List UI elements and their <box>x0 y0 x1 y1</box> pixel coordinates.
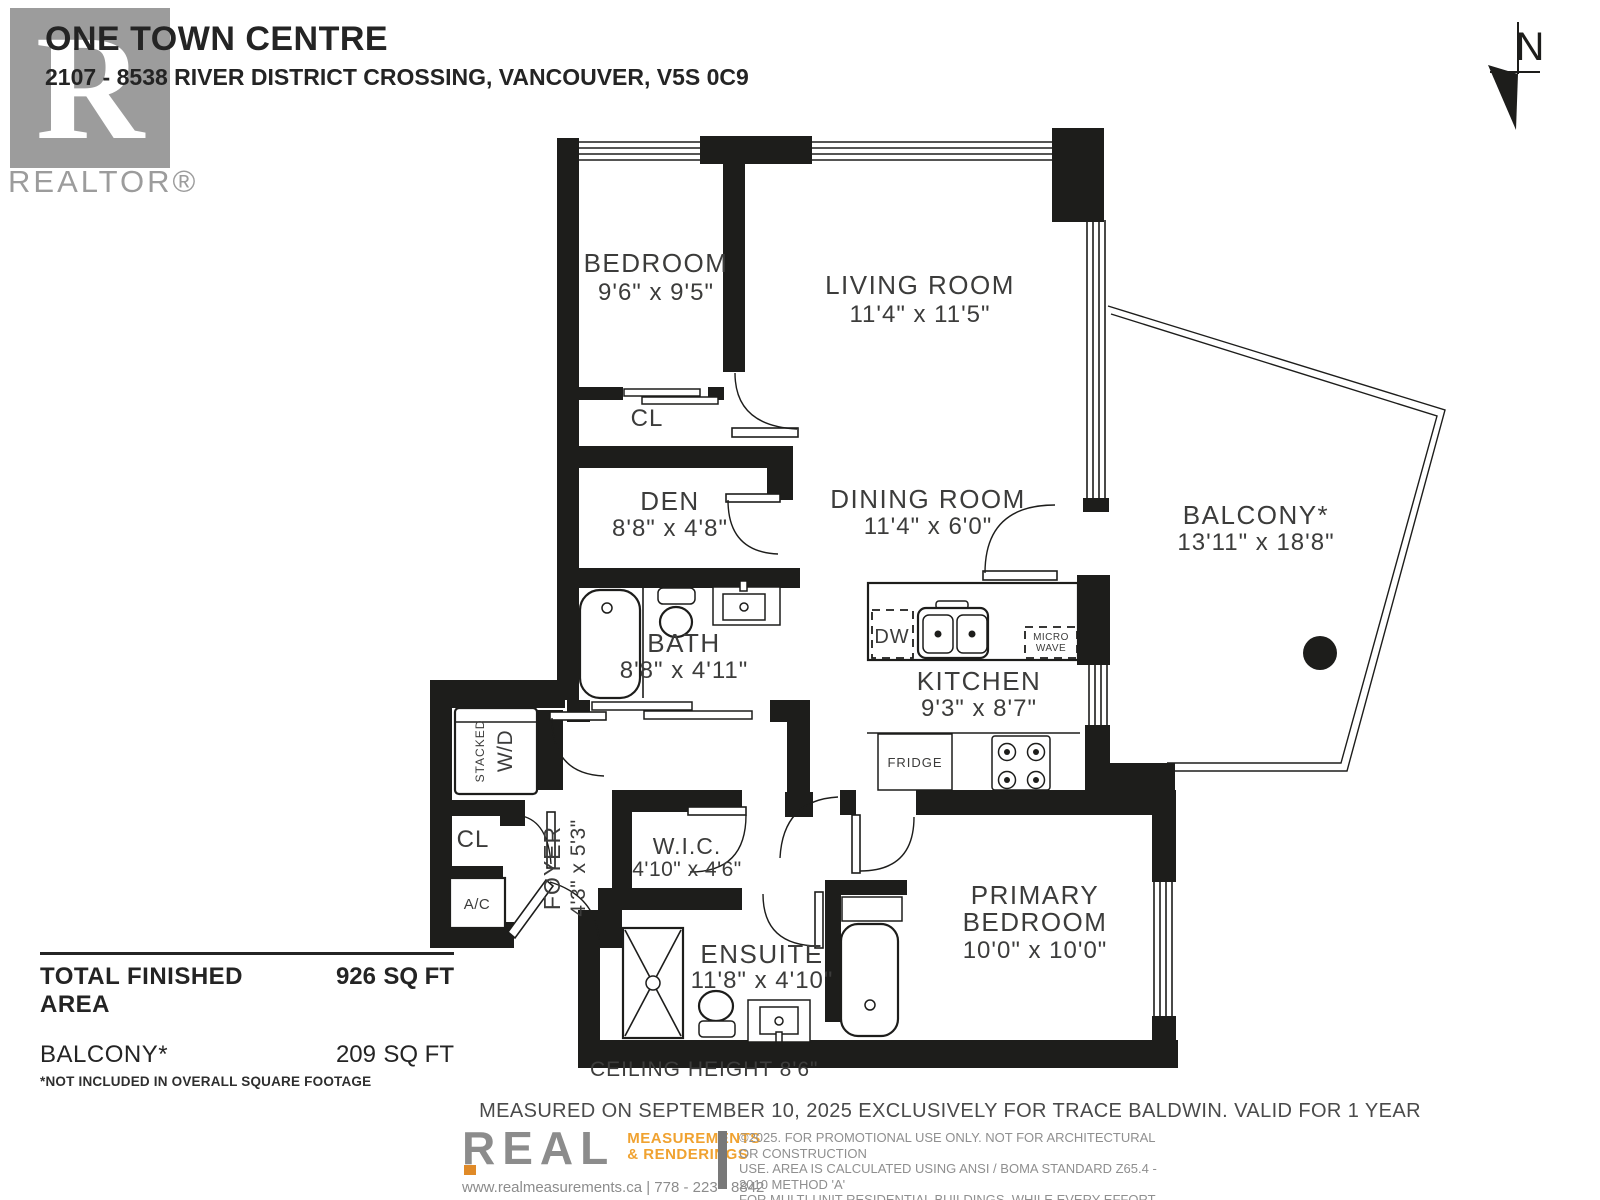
label-ensuite: ENSUITE <box>700 939 823 969</box>
ac-label: A/C <box>464 896 491 913</box>
area-table-divider <box>40 952 454 955</box>
floorplan-drawing: DW MICRO WAVE FRIDGE <box>400 110 1480 1070</box>
disclaimer: ©2025. FOR PROMOTIONAL USE ONLY. NOT FOR… <box>739 1129 1169 1200</box>
label-ensuite-dims: 11'8" x 4'10" <box>691 967 834 994</box>
label-wic: W.I.C. <box>653 833 722 859</box>
label-dining-dims: 11'4" x 6'0" <box>864 513 993 540</box>
balcony-area-unit: SQ FT <box>376 1041 454 1069</box>
wd-label: W/D <box>494 730 517 772</box>
label-primary-2: BEDROOM <box>963 907 1108 937</box>
realtor-logo-text: REALTOR® <box>8 164 198 200</box>
microwave-label-2: WAVE <box>1036 643 1066 654</box>
disclaimer-line: USE. AREA IS CALCULATED USING ANSI / BOM… <box>739 1161 1169 1192</box>
disclaimer-line: FOR MULTI-UNIT RESIDENTIAL BUILDINGS. WH… <box>739 1192 1169 1200</box>
fridge-label: FRIDGE <box>887 755 942 770</box>
north-label: N <box>1516 25 1545 69</box>
microwave-label-1: MICRO <box>1033 632 1069 643</box>
balcony-area-row: BALCONY* 209 SQ FT <box>40 1041 454 1069</box>
window-kitchen-east <box>1089 663 1107 728</box>
balcony-area-label: BALCONY* <box>40 1041 314 1069</box>
label-foyer-dims: 4'3" x 5'3" <box>567 819 590 916</box>
ceiling-height-note: CEILING HEIGHT 8'6" <box>590 1058 818 1082</box>
label-closet-foyer: CL <box>457 826 490 853</box>
label-primary-dims: 10'0" x 10'0" <box>963 937 1108 964</box>
label-foyer: FOYER <box>539 826 565 910</box>
label-dining: DINING ROOM <box>830 484 1026 514</box>
balcony-area-value: 209 <box>314 1041 376 1069</box>
north-arrow-icon: N <box>1468 12 1558 137</box>
brand-contact: www.realmeasurements.ca | 778 - 223 - 88… <box>462 1179 704 1196</box>
tub-shelf <box>842 897 902 921</box>
page-address: 2107 - 8538 RIVER DISTRICT CROSSING, VAN… <box>45 64 749 91</box>
label-living-dims: 11'4" x 11'5" <box>849 301 990 328</box>
label-bath-dims: 8'8" x 4'11" <box>620 657 749 684</box>
window-living-east <box>1087 220 1105 500</box>
label-kitchen: KITCHEN <box>917 666 1042 696</box>
measured-note: MEASURED ON SEPTEMBER 10, 2025 EXCLUSIVE… <box>430 1100 1470 1123</box>
label-closet-bedroom: CL <box>631 405 664 432</box>
page-title: ONE TOWN CENTRE <box>45 20 388 59</box>
label-kitchen-dims: 9'3" x 8'7" <box>921 695 1037 722</box>
wd-label-stacked: STACKED <box>473 720 487 783</box>
total-area-label: TOTAL FINISHED AREA <box>40 963 314 1019</box>
total-area-unit: SQ FT <box>376 963 454 991</box>
disclaimer-line: ©2025. FOR PROMOTIONAL USE ONLY. NOT FOR… <box>739 1130 1169 1161</box>
total-area-row: TOTAL FINISHED AREA 926 SQ FT <box>40 963 454 1019</box>
label-primary-1: PRIMARY <box>971 880 1100 910</box>
footer-divider <box>718 1131 727 1189</box>
label-balcony: BALCONY* <box>1183 500 1329 530</box>
toilet-tank <box>658 588 695 604</box>
area-footnote: *NOT INCLUDED IN OVERALL SQUARE FOOTAGE <box>40 1074 454 1089</box>
label-wic-dims: 4'10" x 4'6" <box>632 858 742 881</box>
brand-logo: REAL <box>462 1129 615 1167</box>
dishwasher-label: DW <box>874 626 909 648</box>
brand-block: REAL MEASUREMENTS & RENDERINGS www.realm… <box>462 1129 704 1196</box>
area-table: TOTAL FINISHED AREA 926 SQ FT BALCONY* 2… <box>40 952 454 1089</box>
window-primary-east <box>1154 880 1172 1018</box>
label-den-dims: 8'8" x 4'8" <box>612 515 728 542</box>
total-area-value: 926 <box>314 963 376 991</box>
label-bedroom-dims: 9'6" x 9'5" <box>598 279 714 306</box>
ensuite-toilet-bowl <box>699 991 733 1021</box>
label-bath: BATH <box>647 628 720 658</box>
footer: REAL MEASUREMENTS & RENDERINGS www.realm… <box>462 1129 1169 1200</box>
label-bedroom: BEDROOM <box>584 248 729 278</box>
ensuite-bathtub <box>841 924 898 1036</box>
label-den: DEN <box>640 486 699 516</box>
label-balcony-dims: 13'11" x 18'8" <box>1177 529 1334 556</box>
label-living: LIVING ROOM <box>825 270 1015 300</box>
ensuite-toilet-tank <box>699 1021 735 1037</box>
balcony-column <box>1303 636 1337 670</box>
floorplan-page: R REALTOR® ONE TOWN CENTRE 2107 - 8538 R… <box>0 0 1600 1200</box>
